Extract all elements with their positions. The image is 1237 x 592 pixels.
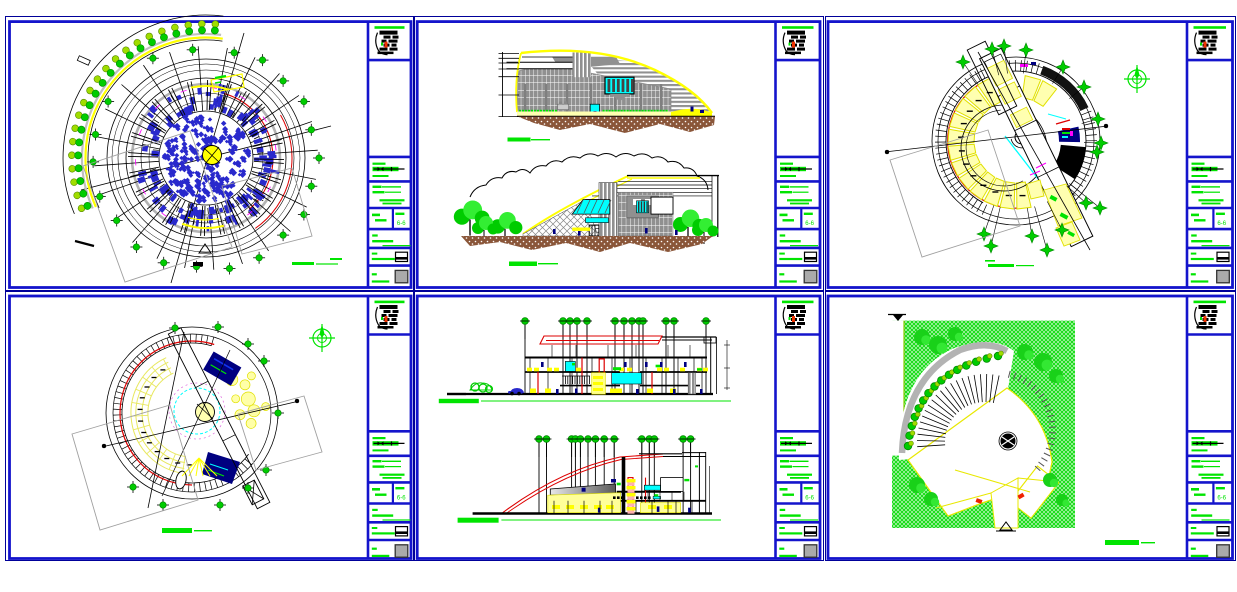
svg-text:6-6: 6-6	[1217, 221, 1226, 227]
svg-text:6-6: 6-6	[805, 496, 814, 502]
svg-text:6-6: 6-6	[1217, 496, 1226, 502]
svg-text:6-6: 6-6	[805, 221, 814, 227]
svg-text:6-6: 6-6	[397, 221, 406, 227]
svg-text:6-6: 6-6	[397, 496, 406, 502]
